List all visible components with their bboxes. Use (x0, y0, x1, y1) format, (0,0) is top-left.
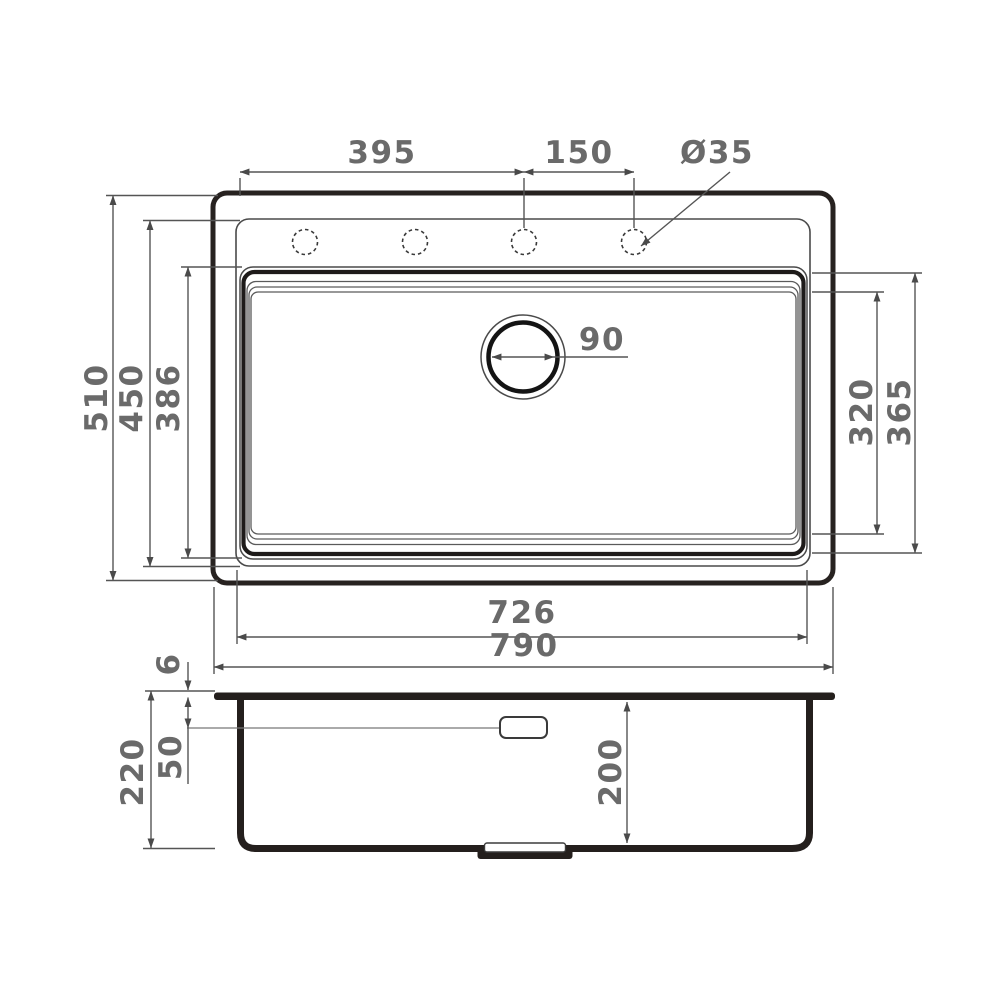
side-rim-slab (214, 693, 835, 701)
dim-200-label: 200 (593, 737, 629, 806)
dim-50-label: 50 (153, 734, 189, 780)
dim-150-label: 150 (544, 135, 613, 171)
drawing-canvas: 395 150 Ø35 510 450 386 320 365 90 726 7… (0, 0, 1000, 1000)
dim-395-label: 395 (347, 135, 416, 171)
overflow-outlet (500, 717, 547, 738)
dim-510-label: 510 (79, 363, 115, 432)
side-view-dimensions (143, 662, 627, 849)
side-view-dimension-labels: 6 50 220 200 (115, 652, 629, 806)
dim-450-label: 450 (114, 363, 150, 432)
sink-technical-drawing: 395 150 Ø35 510 450 386 320 365 90 726 7… (0, 0, 1000, 1000)
dim-320-label: 320 (844, 377, 880, 446)
dim-90-label: 90 (579, 322, 625, 358)
dim-365-label: 365 (882, 377, 918, 446)
faucet-hole-3 (512, 230, 537, 255)
dim-hole-diameter-label: Ø35 (680, 135, 754, 171)
side-drain-slot (485, 843, 566, 852)
dim-220-label: 220 (115, 737, 151, 806)
dim-6-label: 6 (151, 652, 187, 675)
faucet-hole-2 (403, 230, 428, 255)
side-view (187, 693, 835, 860)
faucet-hole-1 (293, 230, 318, 255)
top-view (213, 193, 833, 583)
faucet-hole-4 (622, 230, 647, 255)
dim-790-label: 790 (489, 628, 558, 664)
dim-726-label: 726 (487, 595, 556, 631)
dim-386-label: 386 (151, 363, 187, 432)
